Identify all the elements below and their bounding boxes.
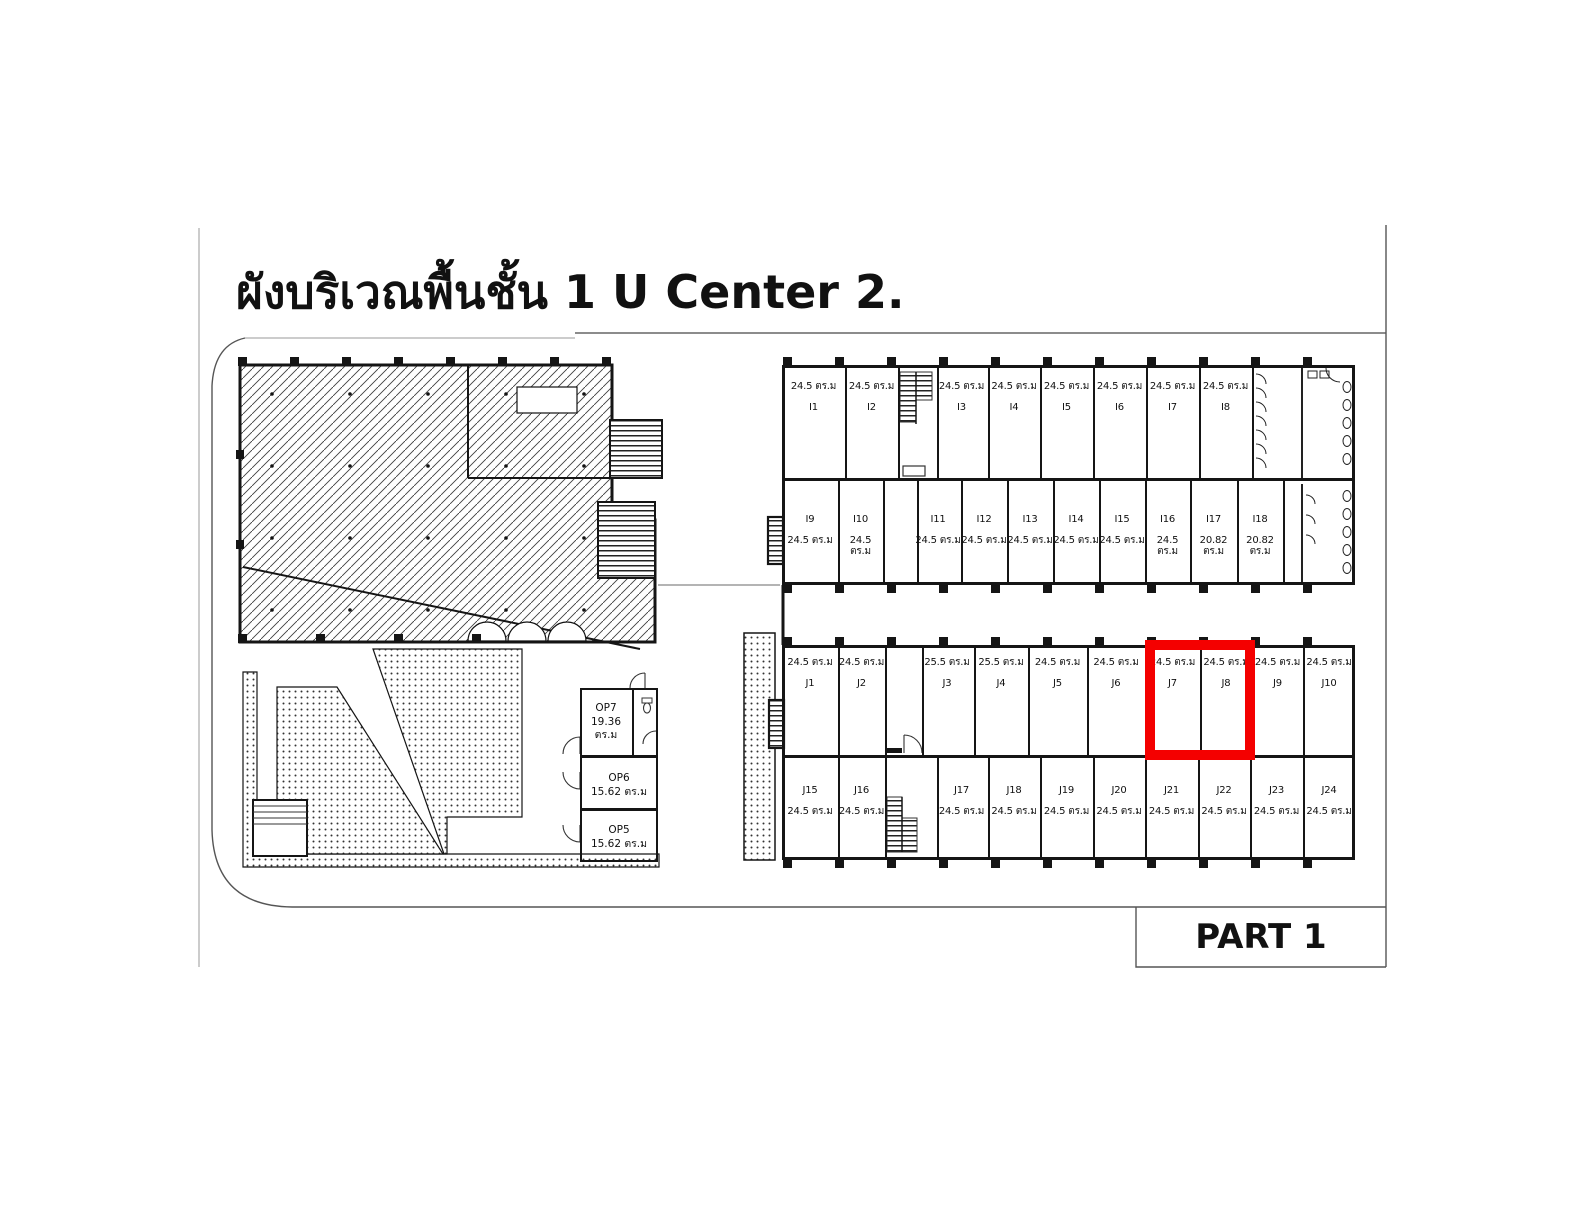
entrance-steps xyxy=(768,517,783,564)
unit-area: 24.5 ตร.ม xyxy=(1145,535,1190,558)
unit-id: J9 xyxy=(1252,678,1303,690)
unit-area: 24.5 ตร.ม xyxy=(1303,806,1355,818)
unit-area: 19.36 ตร.ม xyxy=(580,716,632,743)
unit-J24: J2424.5 ตร.ม xyxy=(1303,757,1355,860)
unit-area: 24.5 ตร.ม xyxy=(988,806,1040,818)
unit-id: J5 xyxy=(1028,678,1087,690)
unit-I9: I924.5 ตร.ม xyxy=(782,480,840,585)
unit-id: I6 xyxy=(1093,402,1146,414)
unit-area: 24.5 ตร.ม xyxy=(1199,381,1252,393)
stairwell xyxy=(598,502,655,578)
unit-id: J4 xyxy=(974,678,1028,690)
unit-J3: 25.5 ตร.มJ3 xyxy=(920,645,976,755)
unit-I1: 24.5 ตร.มI1 xyxy=(782,365,847,478)
unit-area: 24.5 ตร.ม xyxy=(1007,535,1053,547)
unit-id: I13 xyxy=(1007,514,1053,526)
unit-I15: I1524.5 ตร.ม xyxy=(1099,480,1147,585)
unit-J21: J2124.5 ตร.ม xyxy=(1145,757,1200,860)
unit-area: 24.5 ตร.ม xyxy=(1028,657,1087,669)
unit-area: 24.5 ตร.ม xyxy=(1303,657,1355,669)
unit-J23: J2324.5 ตร.ม xyxy=(1250,757,1305,860)
unit-I7: 24.5 ตร.มI7 xyxy=(1146,365,1201,478)
unit-id: J3 xyxy=(920,678,974,690)
unit-area: 24.5 ตร.ม xyxy=(838,657,885,669)
unit-area: 24.5 ตร.ม xyxy=(1252,657,1303,669)
unit-id: I15 xyxy=(1099,514,1145,526)
unit-id: I11 xyxy=(915,514,961,526)
unit-area: 24.5 ตร.ม xyxy=(1093,381,1146,393)
op-toilet-wall xyxy=(632,688,634,755)
highlight-box xyxy=(1145,640,1255,760)
stairwell-bay xyxy=(898,365,939,478)
unit-J9: 24.5 ตร.มJ9 xyxy=(1252,645,1305,755)
landscaping xyxy=(243,633,775,867)
unit-area: 15.62 ตร.ม xyxy=(580,838,658,852)
site-plan: ผังบริเวณพื้นชั้น 1 U Center 2. PART 1 2… xyxy=(0,0,1584,1224)
unit-area: 24.5 ตร.ม xyxy=(1040,381,1093,393)
unit-area: 24.5 ตร.ม xyxy=(1087,657,1145,669)
unit-id: J20 xyxy=(1093,785,1145,797)
unit-id: OP7 xyxy=(580,702,632,716)
restroom-zone xyxy=(1283,480,1355,585)
unit-area: 24.5 ตร.ม xyxy=(782,535,838,547)
unit-OP7: OP7 19.36 ตร.ม xyxy=(580,702,632,743)
unit-id: I3 xyxy=(935,402,988,414)
unit-I14: I1424.5 ตร.ม xyxy=(1053,480,1101,585)
unit-id: J19 xyxy=(1040,785,1093,797)
unit-area: 24.5 ตร.ม xyxy=(1040,806,1093,818)
stairwell xyxy=(610,420,662,478)
unit-J16: J1624.5 ตร.ม xyxy=(838,757,887,860)
building-i-row-1: 24.5 ตร.มI1 24.5 ตร.มI2 24.5 ตร.มI3 24.5… xyxy=(782,365,1355,478)
unit-id: J24 xyxy=(1303,785,1355,797)
unit-id: J1 xyxy=(782,678,838,690)
column-strip xyxy=(783,637,1354,645)
restroom-zone xyxy=(1252,365,1355,478)
unit-id: I14 xyxy=(1053,514,1099,526)
unit-id: J6 xyxy=(1087,678,1145,690)
unit-area: 24.5 ตร.ม xyxy=(782,381,845,393)
unit-area: 24.5 ตร.ม xyxy=(1093,806,1145,818)
interior-room xyxy=(517,387,577,413)
unit-area: 24.5 ตร.ม xyxy=(935,381,988,393)
unit-J4: 25.5 ตร.มJ4 xyxy=(974,645,1030,755)
unit-id: J23 xyxy=(1250,785,1303,797)
unit-I3: 24.5 ตร.มI3 xyxy=(935,365,990,478)
unit-area: 24.5 ตร.ม xyxy=(838,535,883,558)
op-block: OP7 19.36 ตร.ม OP6 15.62 ตร.ม OP5 15.62 … xyxy=(580,688,658,862)
unit-id: I2 xyxy=(845,402,898,414)
unit-OP5: OP5 15.62 ตร.ม xyxy=(580,824,658,851)
unit-area: 24.5 ตร.ม xyxy=(1145,806,1198,818)
building-j-row-2: J1524.5 ตร.ม J1624.5 ตร.ม J1724.5 ตร.ม J… xyxy=(782,757,1355,860)
building-j-row-1: 24.5 ตร.มJ1 24.5 ตร.มJ2 25.5 ตร.มJ3 25.5… xyxy=(782,645,1355,755)
unit-area: 24.5 ตร.ม xyxy=(1099,535,1145,547)
unit-J20: J2024.5 ตร.ม xyxy=(1093,757,1147,860)
unit-J19: J1924.5 ตร.ม xyxy=(1040,757,1095,860)
unit-area: 24.5 ตร.ม xyxy=(782,657,838,669)
unit-area: 25.5 ตร.ม xyxy=(974,657,1028,669)
unit-I10: I1024.5 ตร.ม xyxy=(838,480,885,585)
unit-I18: I1820.82 ตร.ม xyxy=(1237,480,1285,585)
unit-I5: 24.5 ตร.มI5 xyxy=(1040,365,1095,478)
unit-area: 24.5 ตร.ม xyxy=(915,535,961,547)
unit-area: 20.82 ตร.ม xyxy=(1237,535,1283,558)
unit-id: J15 xyxy=(782,785,838,797)
unit-OP6: OP6 15.62 ตร.ม xyxy=(580,772,658,799)
unit-id: J10 xyxy=(1303,678,1355,690)
unit-J15: J1524.5 ตร.ม xyxy=(782,757,840,860)
unit-id: J16 xyxy=(838,785,885,797)
unit-id: I5 xyxy=(1040,402,1093,414)
unit-J17: J1724.5 ตร.ม xyxy=(935,757,990,860)
outdoor-stair xyxy=(253,800,307,856)
unit-J18: J1824.5 ตร.ม xyxy=(988,757,1042,860)
unit-id: I18 xyxy=(1237,514,1283,526)
unit-id: I4 xyxy=(988,402,1040,414)
unit-id: I7 xyxy=(1146,402,1199,414)
unit-id: I9 xyxy=(782,514,838,526)
building-j: 24.5 ตร.มJ1 24.5 ตร.มJ2 25.5 ตร.มJ3 25.5… xyxy=(782,645,1355,860)
unit-id: J21 xyxy=(1145,785,1198,797)
op-divider-wall xyxy=(580,808,658,811)
unit-area: 24.5 ตร.ม xyxy=(838,806,885,818)
building-i: 24.5 ตร.มI1 24.5 ตร.มI2 24.5 ตร.มI3 24.5… xyxy=(782,365,1355,585)
unit-J1: 24.5 ตร.มJ1 xyxy=(782,645,840,755)
corridor-bay xyxy=(883,480,919,585)
building-i-row-2: I924.5 ตร.ม I1024.5 ตร.ม I1124.5 ตร.ม I1… xyxy=(782,480,1355,585)
unit-area: 24.5 ตร.ม xyxy=(845,381,898,393)
unit-J10: 24.5 ตร.มJ10 xyxy=(1303,645,1355,755)
unit-area: 15.62 ตร.ม xyxy=(580,786,658,800)
unit-I13: I1324.5 ตร.ม xyxy=(1007,480,1055,585)
unit-J5: 24.5 ตร.มJ5 xyxy=(1028,645,1089,755)
unit-I8: 24.5 ตร.มI8 xyxy=(1199,365,1254,478)
unit-area: 24.5 ตร.ม xyxy=(935,806,988,818)
unit-I12: I1224.5 ตร.ม xyxy=(961,480,1009,585)
unit-I16: I1624.5 ตร.ม xyxy=(1145,480,1192,585)
unit-area: 24.5 ตร.ม xyxy=(1053,535,1099,547)
part-label: PART 1 xyxy=(1138,910,1384,964)
unit-area: 25.5 ตร.ม xyxy=(920,657,974,669)
unit-id: J22 xyxy=(1198,785,1250,797)
unit-id: J2 xyxy=(838,678,885,690)
unit-J6: 24.5 ตร.มJ6 xyxy=(1087,645,1147,755)
unit-id: I10 xyxy=(838,514,883,526)
unit-id: I16 xyxy=(1145,514,1190,526)
column-strip xyxy=(783,585,1354,593)
unit-I2: 24.5 ตร.มI2 xyxy=(845,365,900,478)
unit-J2: 24.5 ตร.มJ2 xyxy=(838,645,887,755)
unit-id: I1 xyxy=(782,402,845,414)
page-title: ผังบริเวณพื้นชั้น 1 U Center 2. xyxy=(236,256,904,329)
unit-I17: I1720.82 ตร.ม xyxy=(1190,480,1239,585)
unit-id: I8 xyxy=(1199,402,1252,414)
op-divider-wall xyxy=(580,755,658,758)
corridor-bay xyxy=(885,645,924,755)
unit-I4: 24.5 ตร.มI4 xyxy=(988,365,1042,478)
unit-id: J18 xyxy=(988,785,1040,797)
unit-id: OP6 xyxy=(580,772,658,786)
unit-id: I17 xyxy=(1190,514,1237,526)
unit-area: 24.5 ตร.ม xyxy=(1250,806,1303,818)
unit-id: OP5 xyxy=(580,824,658,838)
unit-id: J17 xyxy=(935,785,988,797)
unit-I6: 24.5 ตร.มI6 xyxy=(1093,365,1148,478)
unit-I11: I1124.5 ตร.ม xyxy=(915,480,963,585)
unit-area: 24.5 ตร.ม xyxy=(988,381,1040,393)
unit-area: 20.82 ตร.ม xyxy=(1190,535,1237,558)
unit-J22: J2224.5 ตร.ม xyxy=(1198,757,1252,860)
unit-area: 24.5 ตร.ม xyxy=(1146,381,1199,393)
stairwell-bay xyxy=(885,757,939,860)
unit-area: 24.5 ตร.ม xyxy=(1198,806,1250,818)
drawing-layer xyxy=(0,0,1584,1224)
column-strip xyxy=(783,860,1354,868)
unit-id: I12 xyxy=(961,514,1007,526)
column-strip xyxy=(783,357,1354,365)
unit-area: 24.5 ตร.ม xyxy=(961,535,1007,547)
hatched-building xyxy=(236,357,662,649)
unit-area: 24.5 ตร.ม xyxy=(782,806,838,818)
